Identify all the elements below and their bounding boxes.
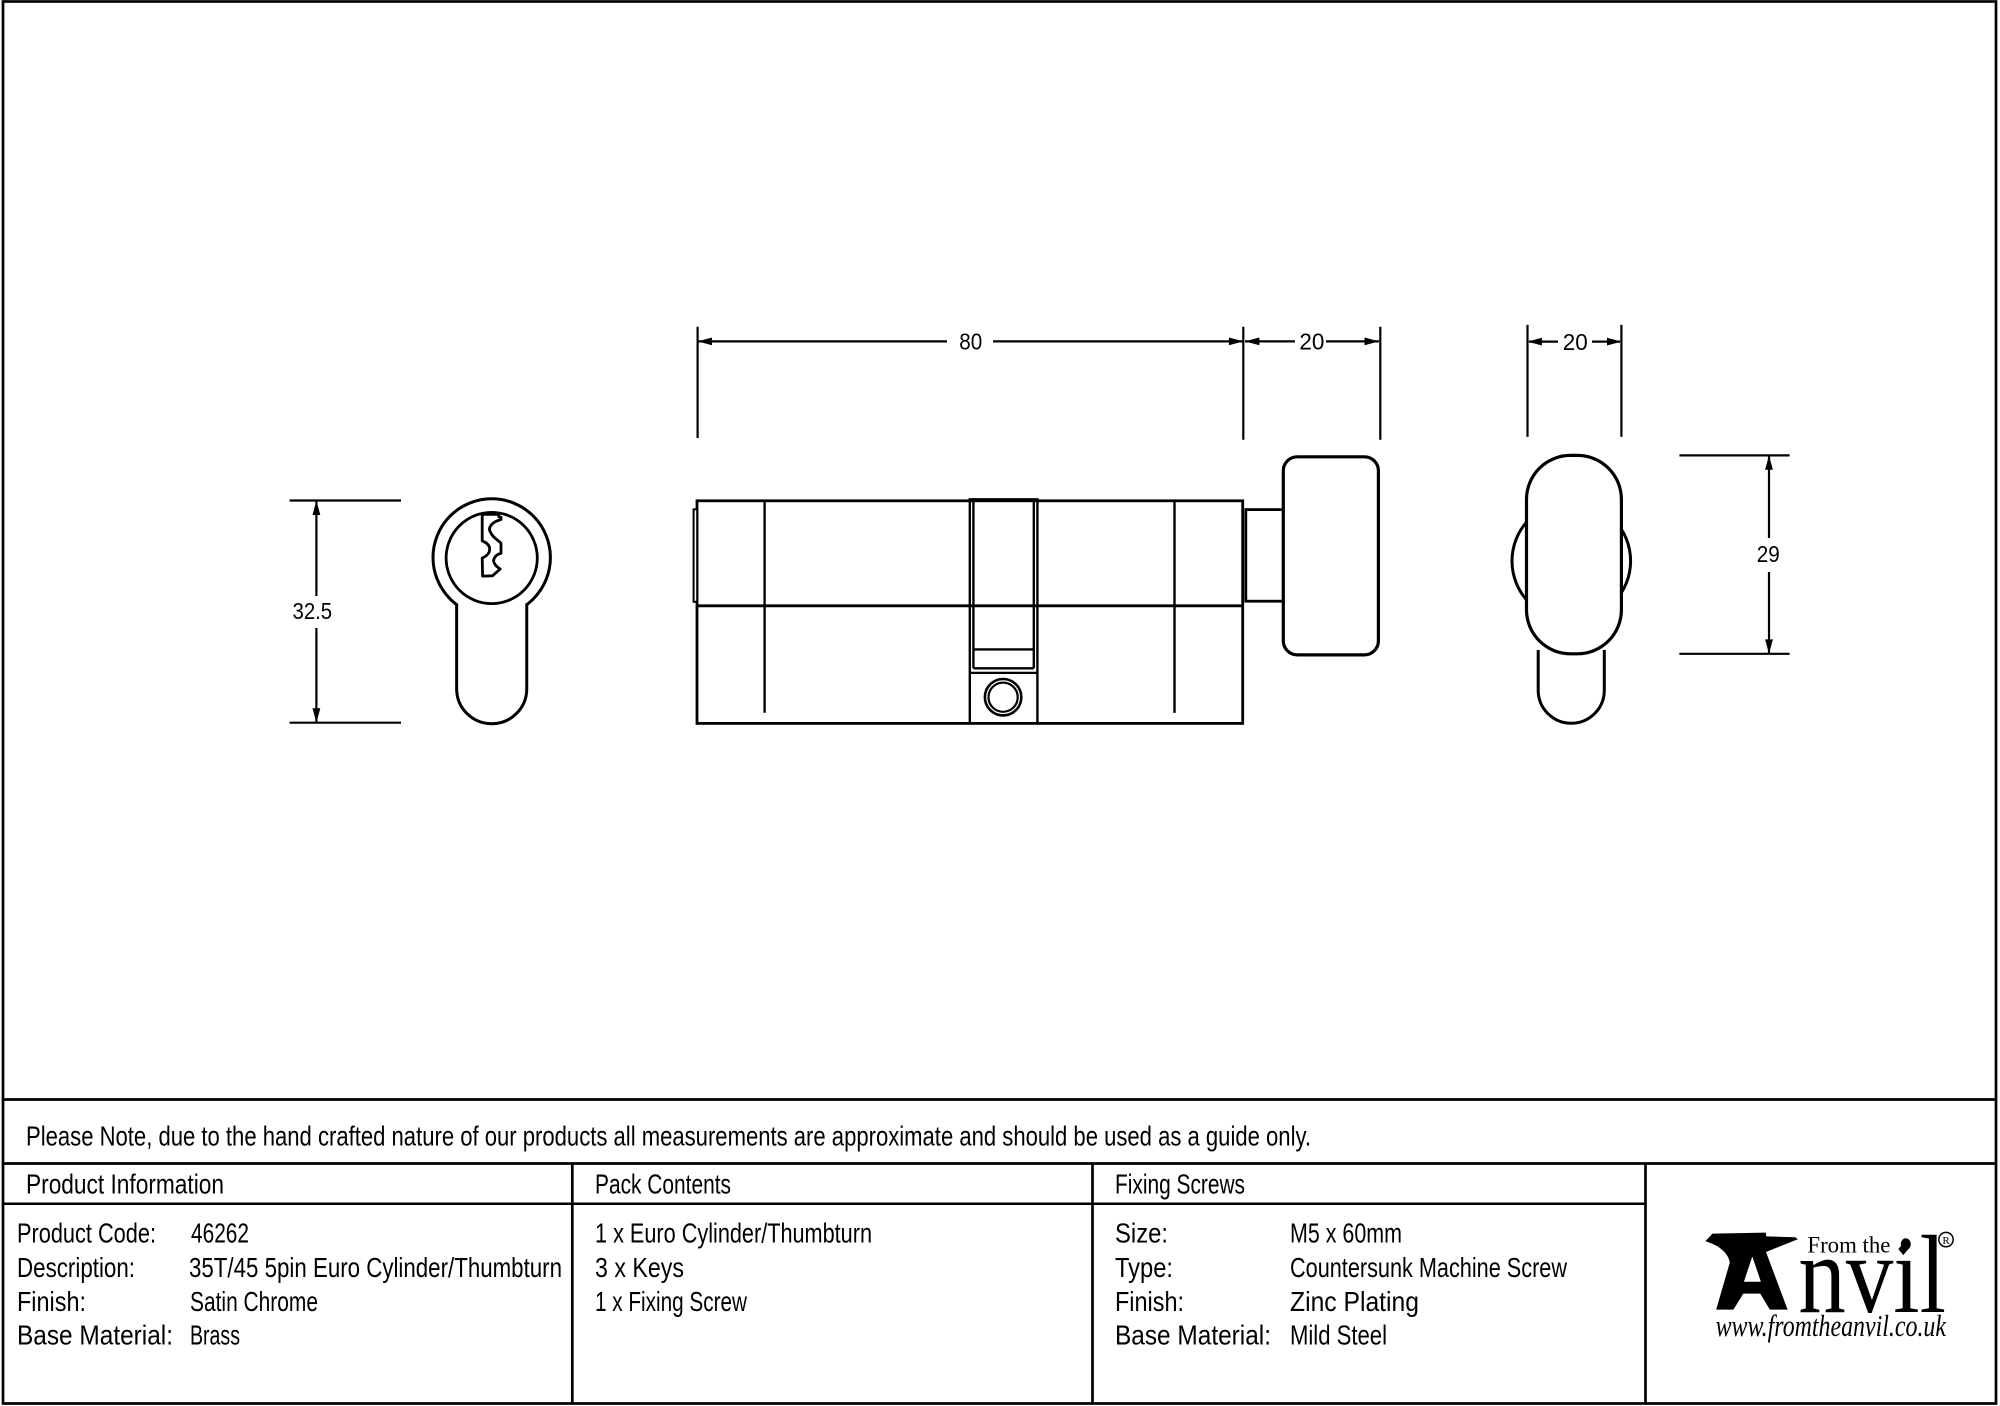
svg-text:Countersunk Machine Screw: Countersunk Machine Screw [1290, 1252, 1568, 1283]
svg-text:Base Material:: Base Material: [1115, 1320, 1271, 1351]
svg-text:Product Code:: Product Code: [17, 1218, 156, 1249]
svg-text:R: R [1942, 1235, 1950, 1247]
svg-text:Pack Contents: Pack Contents [595, 1168, 731, 1199]
svg-text:Base Material:: Base Material: [17, 1320, 173, 1351]
svg-text:29: 29 [1757, 541, 1780, 567]
svg-text:Finish:: Finish: [1115, 1286, 1184, 1317]
svg-text:35T/45 5pin Euro Cylinder/Thum: 35T/45 5pin Euro Cylinder/Thumbturn [189, 1252, 562, 1283]
svg-text:Size:: Size: [1115, 1218, 1168, 1249]
svg-text:80: 80 [959, 329, 982, 355]
svg-text:Zinc Plating: Zinc Plating [1290, 1286, 1419, 1317]
svg-text:Brass: Brass [190, 1320, 240, 1351]
svg-text:Finish:: Finish: [17, 1286, 86, 1317]
svg-text:www.fromtheanvil.co.uk: www.fromtheanvil.co.uk [1716, 1308, 1947, 1343]
svg-text:M5 x 60mm: M5 x 60mm [1290, 1218, 1402, 1249]
svg-text:Please Note, due to the hand c: Please Note, due to the hand crafted nat… [26, 1120, 1311, 1151]
svg-text:Description:: Description: [17, 1252, 135, 1283]
svg-text:32.5: 32.5 [293, 598, 333, 624]
svg-text:1 x Fixing Screw: 1 x Fixing Screw [595, 1286, 748, 1317]
svg-text:20: 20 [1563, 329, 1588, 355]
svg-text:3 x Keys: 3 x Keys [595, 1252, 684, 1283]
svg-text:Fixing Screws: Fixing Screws [1115, 1168, 1245, 1199]
svg-text:Satin Chrome: Satin Chrome [190, 1286, 318, 1317]
svg-text:20: 20 [1299, 329, 1324, 355]
svg-text:1 x Euro Cylinder/Thumbturn: 1 x Euro Cylinder/Thumbturn [595, 1218, 872, 1249]
svg-text:Mild Steel: Mild Steel [1290, 1320, 1387, 1351]
svg-text:Type:: Type: [1115, 1252, 1173, 1283]
svg-text:Product Information: Product Information [26, 1168, 224, 1199]
svg-text:46262: 46262 [191, 1218, 249, 1249]
